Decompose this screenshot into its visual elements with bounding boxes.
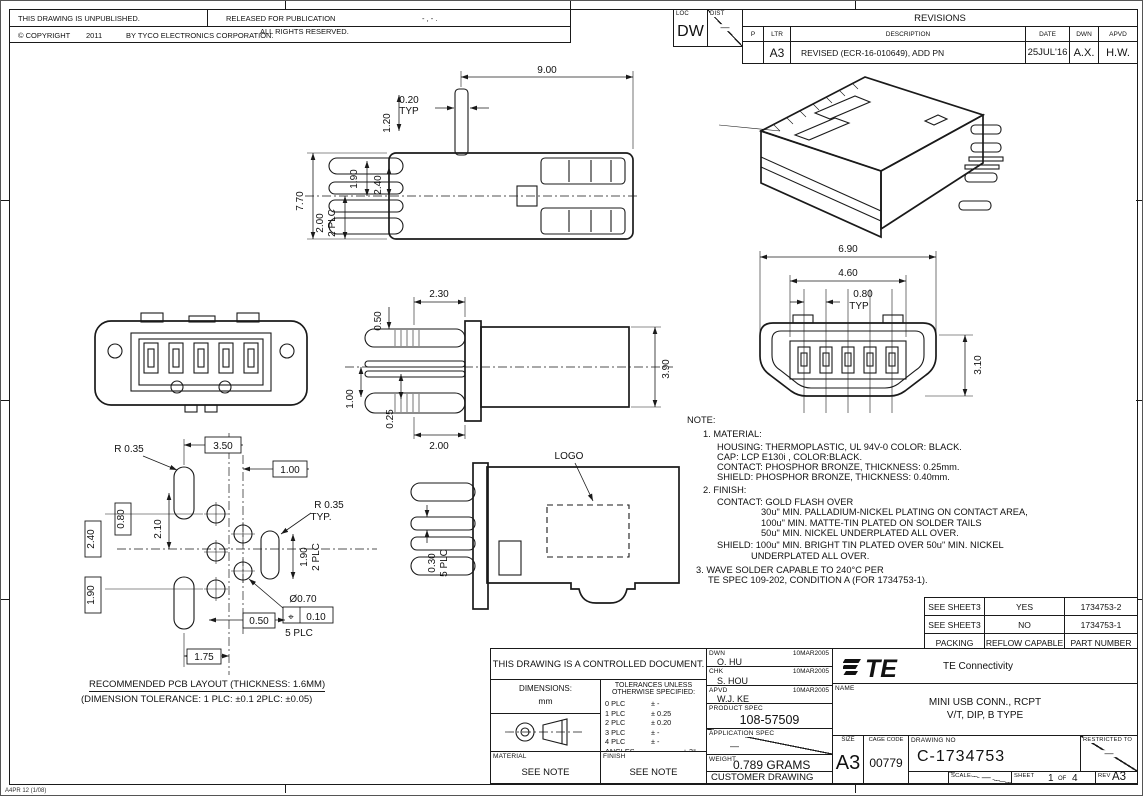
dim-label: 0.30 bbox=[427, 553, 438, 573]
application-spec-dash: — bbox=[728, 743, 741, 750]
note-line: SHIELD: PHOSPHOR BRONZE, THICKNESS: 0.40… bbox=[717, 472, 1143, 482]
dim-label: 9.00 bbox=[537, 65, 557, 76]
dim-label: 0.25 bbox=[385, 409, 396, 429]
dwn-cell: DWN 10MAR2005 O. HU bbox=[706, 648, 833, 667]
part-name-line1: MINI USB CONN., RCPT bbox=[833, 697, 1137, 708]
dist-label: DIST bbox=[710, 11, 725, 17]
note-line: UNDERPLATED ALL OVER. bbox=[751, 551, 1143, 561]
finish-value: SEE NOTE bbox=[601, 762, 706, 782]
dim-label: 1.20 bbox=[382, 113, 393, 133]
part-name-line2: V/T, DIP, B TYPE bbox=[833, 710, 1137, 721]
revisions-table: REVISIONS P LTR DESCRIPTION DATE DWN APV… bbox=[742, 9, 1138, 64]
unpublished-note: THIS DRAWING IS UNPUBLISHED. bbox=[18, 14, 140, 23]
tol-key: 3 PLC bbox=[601, 728, 651, 738]
tol-key: 1 PLC bbox=[601, 709, 651, 719]
size-value: A3 bbox=[833, 746, 863, 780]
material-value: SEE NOTE bbox=[491, 762, 600, 782]
dim-label: 0.20 bbox=[399, 95, 419, 106]
tolerance-row: 1 PLC± 0.25 bbox=[601, 709, 706, 719]
dim-label: 2.40 bbox=[86, 529, 97, 549]
brand-cell: TE TE Connectivity bbox=[832, 648, 1138, 684]
dim-label: 3.50 bbox=[213, 441, 233, 452]
revisions-col-description: DESCRIPTION bbox=[790, 26, 1026, 42]
weight-cell: WEIGHT 0.789 GRAMS bbox=[706, 754, 833, 772]
tol-key: 4 PLC bbox=[601, 737, 651, 747]
pcb-layout-caption: RECOMMENDED PCB LAYOUT (THICKNESS: 1.6MM… bbox=[89, 679, 325, 692]
chk-cell: CHK 10MAR2005 S. HOU bbox=[706, 666, 833, 686]
restricted-dash: — bbox=[1103, 750, 1116, 757]
controlled-document-note: THIS DRAWING IS A CONTROLLED DOCUMENT. bbox=[490, 648, 707, 680]
scale-value: — bbox=[980, 774, 993, 781]
size-cell: SIZE A3 bbox=[832, 735, 864, 784]
dim-label: 3.90 bbox=[661, 359, 672, 379]
copyright-symbol: © COPYRIGHT bbox=[18, 31, 70, 40]
note-line: TE SPEC 109-202, CONDITION A (FOR 173475… bbox=[708, 575, 1143, 585]
dim-label: 0.80 bbox=[853, 289, 873, 300]
dim-label: 4.60 bbox=[838, 268, 858, 279]
name-label: NAME bbox=[835, 685, 855, 692]
restricted-to-cell: RESTRICTED TO — bbox=[1080, 735, 1138, 772]
tolerances-cell: TOLERANCES UNLESS OTHERWISE SPECIFIED: 0… bbox=[600, 679, 707, 752]
revisions-col-ltr: LTR bbox=[763, 26, 791, 42]
position-tolerance-icon: ⌖ bbox=[288, 612, 294, 623]
dim-label: 1.90 bbox=[86, 585, 97, 605]
dim-label: 2.10 bbox=[153, 519, 164, 539]
dim-label: 2.30 bbox=[429, 289, 449, 300]
dim-label: 1.00 bbox=[345, 389, 356, 409]
dimensions-label: DIMENSIONS: bbox=[491, 684, 600, 693]
dim-label: Ø0.70 bbox=[289, 594, 317, 605]
sheet-of: OF bbox=[1058, 776, 1066, 782]
scale-label: SCALE bbox=[951, 773, 971, 779]
table-cell: SEE SHEET3 bbox=[924, 597, 985, 616]
note-line: 30u" MIN. PALLADIUM-NICKEL PLATING ON CO… bbox=[761, 507, 1143, 517]
tolerance-row: 4 PLC± - bbox=[601, 737, 706, 747]
dim-label: TYP bbox=[849, 301, 869, 312]
customer-drawing-label: CUSTOMER DRAWING bbox=[711, 772, 813, 783]
restricted-to-label: RESTRICTED TO bbox=[1083, 737, 1132, 743]
form-footer-code: A4PR 12 (1/08) bbox=[5, 788, 46, 794]
pcb-layout-tolerance-caption: (DIMENSION TOLERANCE: 1 PLC: ±0.1 2PLC: … bbox=[81, 694, 312, 705]
dwn-date: 10MAR2005 bbox=[793, 650, 829, 657]
revisions-col-date: DATE bbox=[1025, 26, 1070, 42]
dim-label: 1.75 bbox=[194, 652, 214, 663]
revision-row-dwn: A.X. bbox=[1069, 41, 1099, 64]
tol-val: ± 0.25 bbox=[651, 709, 706, 719]
sheet-label: SHEET bbox=[1014, 773, 1034, 779]
drawing-no-label: DRAWING NO bbox=[911, 737, 956, 744]
scale-cell: SCALE — bbox=[948, 771, 1012, 784]
note-line: CONTACT: PHOSPHOR BRONZE, THICKNESS: 0.2… bbox=[717, 462, 1143, 472]
note-line: 100u" MIN. MATTE-TIN PLATED ON SOLDER TA… bbox=[761, 518, 1143, 528]
cage-code-label: CAGE CODE bbox=[864, 737, 908, 743]
tolerance-title-2: OTHERWISE SPECIFIED: bbox=[601, 689, 706, 696]
te-logo-text: TE bbox=[865, 655, 898, 682]
table-cell: YES bbox=[984, 597, 1065, 616]
dim-label: 5 PLC bbox=[439, 549, 450, 577]
brand-name: TE Connectivity bbox=[943, 649, 1123, 683]
material-label: MATERIAL bbox=[493, 753, 527, 760]
front-view-drawing: 6.90 4.60 0.80 TYP 3.10 bbox=[695, 239, 1001, 421]
rev-value: A3 bbox=[1112, 771, 1126, 783]
revision-row-apvd: H.W. bbox=[1098, 41, 1138, 64]
rights-reserved: ALL RIGHTS RESERVED. bbox=[260, 27, 349, 36]
tolerance-row: 0 PLC± - bbox=[601, 699, 706, 709]
note-line: 1. MATERIAL: bbox=[703, 429, 1143, 439]
dim-label: R 0.35 bbox=[114, 444, 144, 455]
loc-box: LOC DW bbox=[673, 9, 708, 47]
tol-val: ± 0.20 bbox=[651, 718, 706, 728]
dim-label: 1.00 bbox=[280, 465, 300, 476]
name-cell: NAME MINI USB CONN., RCPT V/T, DIP, B TY… bbox=[832, 683, 1138, 736]
revision-description-text: REVISED (ECR-16-010649), ADD PN bbox=[791, 48, 944, 58]
apvd-cell: APVD 10MAR2005 W.J. KE bbox=[706, 685, 833, 704]
material-cell: MATERIAL SEE NOTE bbox=[490, 751, 601, 784]
dim-label: 3.10 bbox=[973, 355, 984, 375]
note-line: CAP: LCP E130i , COLOR:BLACK. bbox=[717, 452, 1143, 462]
drawing-no-cell: DRAWING NO C-1734753 bbox=[908, 735, 1081, 772]
dwn-label: DWN bbox=[709, 650, 725, 657]
dim-label: 2.00 bbox=[315, 213, 326, 233]
dim-label: 0.50 bbox=[249, 616, 269, 627]
tol-key: 2 PLC bbox=[601, 718, 651, 728]
dist-dash: — bbox=[719, 24, 732, 31]
rear-view-drawing bbox=[85, 307, 317, 417]
size-label: SIZE bbox=[833, 737, 863, 743]
tol-val: ± - bbox=[651, 699, 706, 709]
finish-label: FINISH bbox=[603, 753, 626, 760]
tol-val: ± - bbox=[651, 737, 706, 747]
chk-date: 10MAR2005 bbox=[793, 668, 829, 675]
notes-block: NOTE: 1. MATERIAL: HOUSING: THERMOPLASTI… bbox=[687, 415, 1143, 585]
loc-value: DW bbox=[674, 18, 707, 46]
apvd-label: APVD bbox=[709, 687, 728, 694]
note-line: CONTACT: GOLD FLASH OVER bbox=[717, 497, 1143, 507]
sheet-number: 1 bbox=[1048, 773, 1054, 784]
dim-label: 2 PLC bbox=[311, 543, 322, 571]
copyright-year: 2011 bbox=[86, 31, 102, 40]
weight-value: 0.789 GRAMS bbox=[733, 758, 810, 772]
te-logo: TE bbox=[843, 652, 909, 682]
dim-label: 2 PLC bbox=[327, 209, 338, 237]
rev-label: REV bbox=[1098, 773, 1111, 779]
logo-callout-label: LOGO bbox=[555, 451, 584, 462]
dim-label: TYP. bbox=[311, 512, 332, 523]
customer-drawing-cell: CUSTOMER DRAWING bbox=[706, 771, 833, 784]
dimensions-unit: mm bbox=[491, 696, 600, 706]
tol-key: 0 PLC bbox=[601, 699, 651, 709]
table-cell: 1734753-2 bbox=[1064, 597, 1138, 616]
revisions-col-dwn: DWN bbox=[1069, 26, 1099, 42]
revisions-title: REVISIONS bbox=[742, 9, 1138, 27]
revision-row-date: 25JUL'16 bbox=[1025, 41, 1070, 64]
dist-box: DIST — bbox=[707, 9, 743, 47]
sheet-total: 4 bbox=[1072, 773, 1078, 784]
note-line: 50u" MIN. NICKEL UNDERPLATED ALL OVER. bbox=[761, 528, 1143, 538]
tolerance-title-1: TOLERANCES UNLESS bbox=[601, 682, 706, 689]
isometric-view-drawing bbox=[719, 59, 1005, 239]
tol-val: ± - bbox=[651, 728, 706, 738]
table-cell: 1734753-1 bbox=[1064, 615, 1138, 634]
finish-cell: FINISH SEE NOTE bbox=[600, 751, 707, 784]
application-spec-label: APPLICATION SPEC bbox=[709, 730, 776, 737]
title-block: THIS DRAWING IS A CONTROLLED DOCUMENT. D… bbox=[490, 648, 1138, 784]
revisions-col-apvd: APVD bbox=[1098, 26, 1138, 42]
note-line: HOUSING: THERMOPLASTIC, UL 94V-0 COLOR: … bbox=[717, 442, 1143, 452]
dim-label: R 0.35 bbox=[314, 500, 344, 511]
released-note: RELEASED FOR PUBLICATION bbox=[226, 14, 335, 23]
third-angle-projection-icon bbox=[491, 714, 600, 751]
dim-label: 5 PLC bbox=[285, 628, 313, 639]
bottom-filler-cell bbox=[908, 771, 949, 784]
dim-label: 6.90 bbox=[838, 244, 858, 255]
projection-symbol-cell bbox=[490, 713, 601, 752]
dim-label: 2.40 bbox=[373, 175, 384, 195]
dim-label: 1.90 bbox=[349, 169, 360, 189]
application-spec-cell: APPLICATION SPEC — bbox=[706, 728, 833, 755]
released-value: - , - . bbox=[422, 14, 437, 23]
dim-label: 0.50 bbox=[373, 311, 384, 331]
cage-code-value: 00779 bbox=[864, 748, 908, 778]
chk-label: CHK bbox=[709, 668, 723, 675]
apvd-date: 10MAR2005 bbox=[793, 687, 829, 694]
dim-label: 1.90 bbox=[299, 547, 310, 567]
drawing-no-value: C-1734753 bbox=[917, 748, 1005, 766]
table-cell: NO bbox=[984, 615, 1065, 634]
product-spec-label: PRODUCT SPEC bbox=[709, 705, 763, 712]
tolerance-row: 2 PLC± 0.20 bbox=[601, 718, 706, 728]
rev-cell: REV A3 bbox=[1095, 771, 1138, 784]
tolerance-row: 3 PLC± - bbox=[601, 728, 706, 738]
part-number-table: SEE SHEET3 YES 1734753-2 SEE SHEET3 NO 1… bbox=[924, 597, 1138, 651]
drawing-sheet: THIS DRAWING IS UNPUBLISHED. RELEASED FO… bbox=[0, 0, 1143, 796]
dim-label: 0.80 bbox=[116, 509, 127, 529]
product-spec-cell: PRODUCT SPEC 108-57509 bbox=[706, 703, 833, 729]
top-view-drawing: 9.00 0.20 TYP 1.20 7.70 1.90 2.40 2.00 2… bbox=[289, 61, 641, 247]
revisions-col-p: P bbox=[742, 26, 764, 42]
pcb-layout-drawing: R 0.35 3.50 1.00 R 0.35 TYP. 2.10 0.80 2… bbox=[77, 427, 425, 679]
dimensions-cell: DIMENSIONS: mm bbox=[490, 679, 601, 714]
legal-header: THIS DRAWING IS UNPUBLISHED. RELEASED FO… bbox=[9, 9, 571, 43]
table-cell: SEE SHEET3 bbox=[924, 615, 985, 634]
sheet-cell: SHEET 1 OF 4 bbox=[1011, 771, 1096, 784]
note-line: NOTE: bbox=[687, 415, 1143, 425]
dim-label: 0.10 bbox=[306, 612, 326, 623]
logo-side-view-drawing: LOGO 0.30 5 PLC bbox=[397, 433, 695, 621]
cage-code-cell: CAGE CODE 00779 bbox=[863, 735, 909, 784]
copyright-company: BY TYCO ELECTRONICS CORPORATION. bbox=[126, 31, 274, 40]
note-line: 2. FINISH: bbox=[703, 485, 1143, 495]
note-line: 3. WAVE SOLDER CAPABLE TO 240°C PER bbox=[696, 565, 1143, 575]
dim-label: TYP bbox=[399, 106, 419, 117]
loc-label: LOC bbox=[676, 11, 689, 17]
dim-label: 7.70 bbox=[295, 191, 306, 211]
product-spec-value: 108-57509 bbox=[707, 712, 832, 728]
note-line: SHIELD: 100u" MIN. BRIGHT TIN PLATED OVE… bbox=[717, 540, 1143, 550]
